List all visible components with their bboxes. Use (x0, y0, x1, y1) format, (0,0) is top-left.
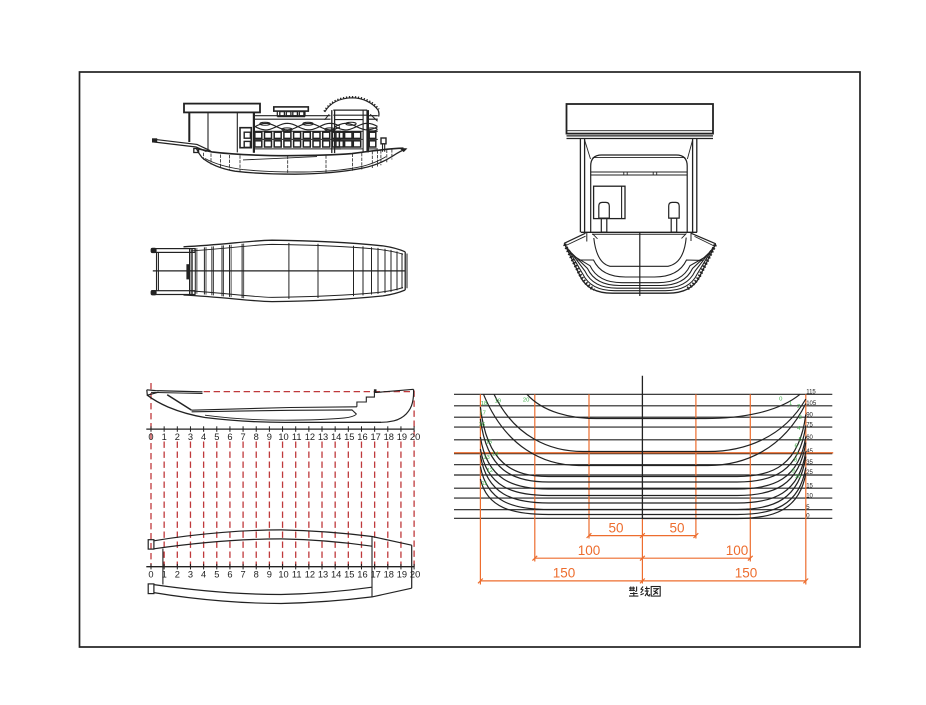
svg-text:75: 75 (806, 422, 813, 428)
svg-text:1: 1 (162, 432, 167, 442)
svg-text:7: 7 (240, 569, 245, 579)
svg-text:100: 100 (726, 543, 749, 558)
svg-text:8: 8 (254, 432, 259, 442)
svg-text:12: 12 (305, 432, 315, 442)
svg-text:4: 4 (201, 432, 206, 442)
svg-text:15: 15 (344, 569, 354, 579)
svg-text:2: 2 (175, 569, 180, 579)
svg-text:18: 18 (384, 432, 394, 442)
svg-text:6: 6 (227, 432, 232, 442)
svg-text:14: 14 (331, 432, 341, 442)
svg-text:19: 19 (397, 569, 407, 579)
svg-text:14: 14 (492, 452, 499, 458)
svg-text:16: 16 (479, 422, 486, 428)
svg-text:20: 20 (410, 432, 420, 442)
svg-text:9: 9 (267, 432, 272, 442)
svg-text:50: 50 (608, 520, 623, 535)
svg-text:50: 50 (669, 520, 684, 535)
svg-text:0: 0 (148, 432, 153, 442)
svg-text:13: 13 (483, 455, 490, 461)
svg-text:17: 17 (479, 410, 486, 416)
svg-text:18: 18 (384, 569, 394, 579)
svg-text:19: 19 (495, 399, 502, 405)
svg-text:150: 150 (553, 566, 576, 581)
svg-text:18: 18 (481, 401, 488, 407)
svg-text:15: 15 (486, 440, 493, 446)
svg-text:13: 13 (318, 432, 328, 442)
svg-text:7: 7 (240, 432, 245, 442)
svg-text:100: 100 (578, 543, 601, 558)
svg-text:11: 11 (292, 432, 302, 442)
svg-text:10: 10 (278, 569, 288, 579)
svg-text:105: 105 (806, 401, 817, 407)
svg-text:1: 1 (162, 569, 167, 579)
svg-text:150: 150 (735, 566, 758, 581)
svg-text:17: 17 (370, 432, 380, 442)
svg-text:4: 4 (201, 569, 206, 579)
svg-text:15: 15 (344, 432, 354, 442)
svg-text:2: 2 (175, 432, 180, 442)
svg-text:1: 1 (789, 401, 792, 407)
svg-text:2: 2 (797, 404, 800, 410)
svg-text:16: 16 (357, 569, 367, 579)
svg-text:11: 11 (292, 569, 302, 579)
svg-text:0: 0 (148, 569, 153, 579)
svg-text:8: 8 (254, 569, 259, 579)
svg-text:3: 3 (188, 569, 193, 579)
svg-text:12: 12 (305, 569, 315, 579)
svg-text:35: 35 (806, 460, 813, 466)
svg-text:45: 45 (806, 449, 813, 455)
svg-text:5: 5 (214, 569, 219, 579)
svg-text:12: 12 (487, 468, 494, 474)
svg-text:10: 10 (278, 432, 288, 442)
svg-text:15: 15 (806, 483, 813, 489)
svg-text:115: 115 (806, 390, 816, 396)
svg-text:90: 90 (806, 412, 813, 418)
svg-text:19: 19 (397, 432, 407, 442)
svg-text:14: 14 (331, 569, 341, 579)
svg-text:3: 3 (188, 432, 193, 442)
svg-text:9: 9 (267, 569, 272, 579)
svg-text:10: 10 (806, 493, 813, 499)
svg-text:10: 10 (795, 474, 802, 480)
svg-text:20: 20 (523, 398, 530, 404)
svg-text:60: 60 (806, 435, 813, 441)
svg-text:16: 16 (357, 432, 367, 442)
svg-text:6: 6 (227, 569, 232, 579)
svg-text:25: 25 (806, 470, 813, 476)
svg-text:5: 5 (214, 432, 219, 442)
svg-text:13: 13 (318, 569, 328, 579)
svg-text:11: 11 (481, 481, 487, 487)
